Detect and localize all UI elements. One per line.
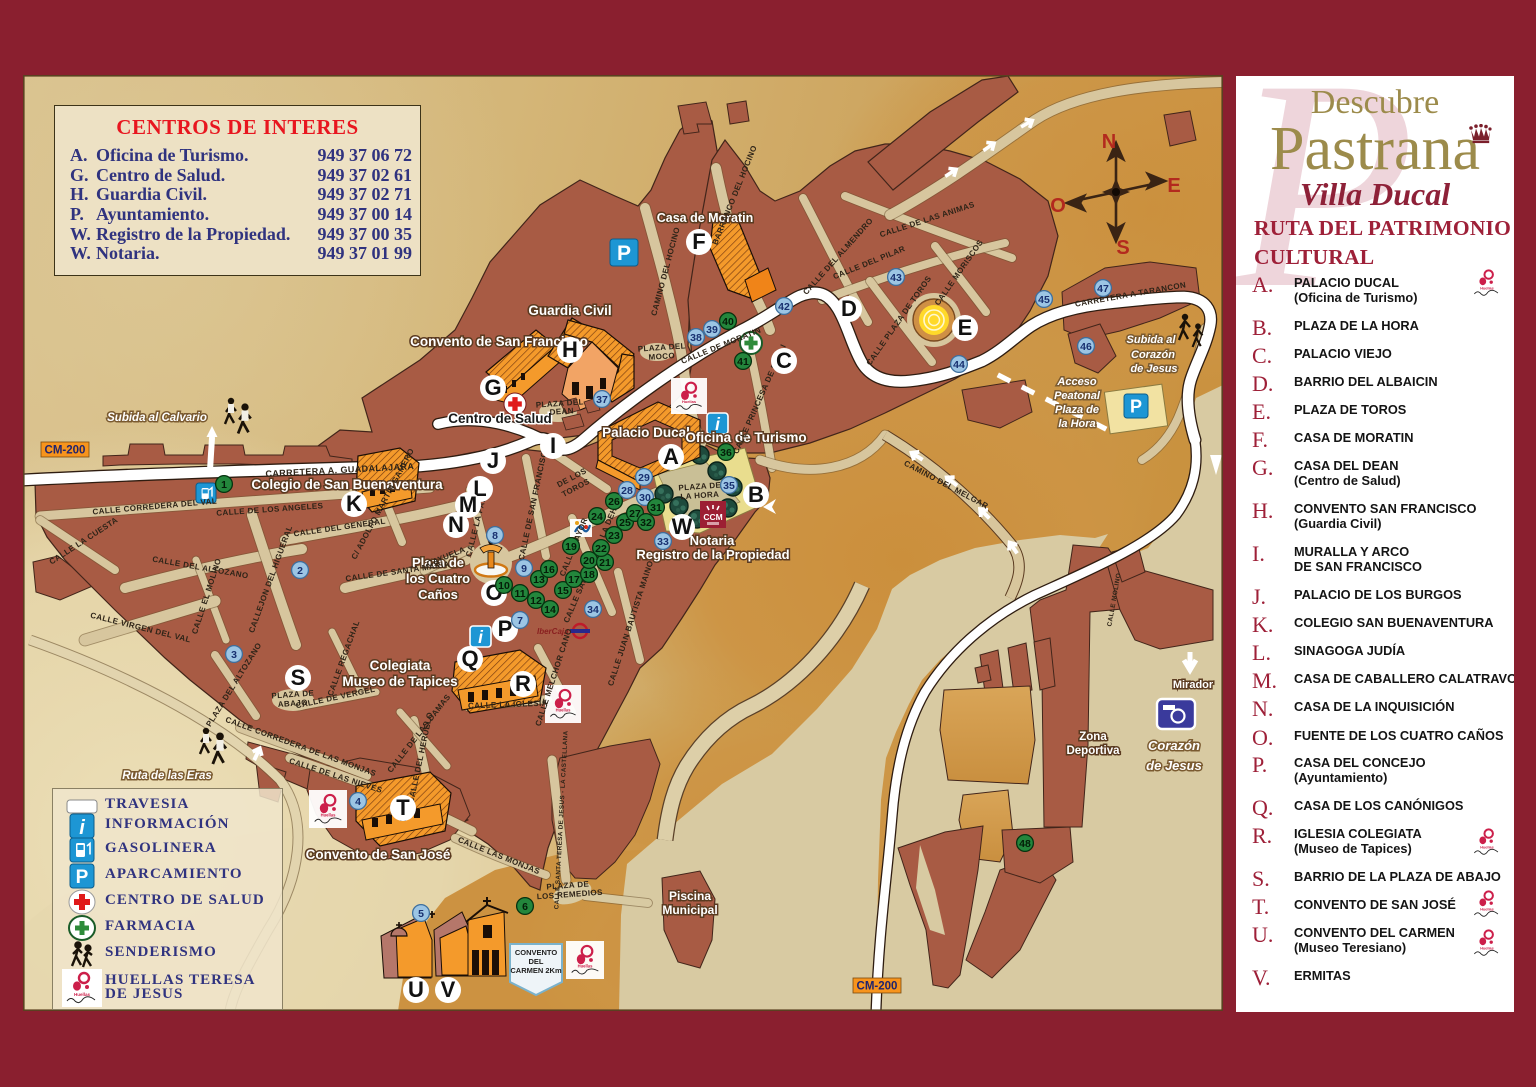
- svg-text:2: 2: [297, 565, 303, 577]
- svg-text:47: 47: [1097, 283, 1109, 295]
- svg-text:Q: Q: [461, 646, 478, 671]
- svg-text:la Hora: la Hora: [1058, 418, 1095, 430]
- svg-text:Museo de Tapices: Museo de Tapices: [342, 674, 457, 689]
- svg-text:48: 48: [1019, 838, 1031, 850]
- svg-text:14: 14: [544, 604, 556, 616]
- svg-text:CM-200: CM-200: [45, 445, 86, 457]
- svg-text:23: 23: [608, 530, 620, 542]
- svg-text:Huellas: Huellas: [578, 964, 593, 969]
- svg-text:40: 40: [722, 316, 734, 328]
- svg-text:1: 1: [221, 479, 227, 491]
- svg-text:Mirador: Mirador: [1173, 679, 1214, 691]
- svg-text:Subida al Calvario: Subida al Calvario: [107, 412, 207, 424]
- svg-text:K: K: [346, 491, 362, 516]
- svg-text:10: 10: [498, 580, 510, 592]
- svg-text:38: 38: [690, 332, 702, 344]
- svg-text:S: S: [291, 665, 306, 690]
- svg-text:Peatonal: Peatonal: [1054, 390, 1101, 402]
- svg-text:41: 41: [737, 356, 749, 368]
- svg-text:E: E: [958, 315, 973, 340]
- svg-text:21: 21: [599, 557, 611, 569]
- svg-text:P: P: [76, 867, 89, 888]
- svg-text:G: G: [484, 375, 501, 400]
- svg-text:7: 7: [517, 615, 523, 627]
- svg-text:C: C: [776, 348, 792, 373]
- svg-text:12: 12: [530, 595, 542, 607]
- svg-text:T: T: [396, 795, 410, 820]
- svg-text:de Jesus: de Jesus: [1130, 363, 1177, 375]
- svg-text:N: N: [1102, 131, 1116, 153]
- svg-text:E: E: [1167, 175, 1180, 197]
- svg-text:V: V: [441, 977, 456, 1002]
- svg-text:35: 35: [723, 480, 735, 492]
- svg-text:19: 19: [565, 541, 577, 553]
- svg-text:P: P: [498, 616, 513, 641]
- svg-text:F: F: [692, 229, 705, 254]
- svg-text:Deportiva: Deportiva: [1066, 745, 1120, 757]
- svg-text:Caños: Caños: [418, 587, 458, 602]
- svg-text:Acceso: Acceso: [1056, 376, 1096, 388]
- svg-text:33: 33: [657, 536, 669, 548]
- svg-text:Casa de Moratin: Casa de Moratin: [657, 211, 754, 225]
- svg-text:Corazón: Corazón: [1131, 349, 1175, 361]
- svg-text:W: W: [672, 514, 693, 539]
- svg-text:5: 5: [418, 908, 424, 920]
- svg-text:de Jesus: de Jesus: [1146, 758, 1202, 773]
- svg-text:Notaria: Notaria: [690, 533, 736, 548]
- svg-text:CM-200: CM-200: [857, 981, 898, 993]
- svg-text:Piscina: Piscina: [669, 889, 711, 903]
- svg-text:17: 17: [568, 574, 580, 586]
- svg-text:34: 34: [587, 604, 599, 616]
- svg-text:8: 8: [492, 530, 498, 542]
- svg-text:39: 39: [706, 324, 718, 336]
- svg-text:Palacio Ducal: Palacio Ducal: [602, 425, 690, 440]
- svg-text:Municipal: Municipal: [662, 903, 717, 917]
- svg-text:Corazón: Corazón: [1148, 738, 1200, 753]
- svg-text:15: 15: [557, 585, 569, 597]
- svg-text:22: 22: [595, 543, 607, 555]
- svg-text:Colegiata: Colegiata: [370, 658, 431, 673]
- svg-text:Centro de Salud: Centro de Salud: [448, 411, 552, 426]
- svg-text:Plaza de: Plaza de: [1055, 404, 1099, 416]
- svg-text:Zona: Zona: [1079, 731, 1107, 743]
- svg-text:DEL: DEL: [529, 957, 544, 966]
- svg-text:11: 11: [514, 588, 525, 600]
- svg-text:45: 45: [1038, 294, 1050, 306]
- svg-text:Huellas: Huellas: [321, 813, 336, 818]
- svg-text:6: 6: [522, 901, 528, 913]
- svg-text:Subida al: Subida al: [1127, 334, 1177, 346]
- svg-text:26: 26: [608, 496, 620, 508]
- svg-text:N: N: [448, 512, 464, 537]
- svg-text:9: 9: [521, 563, 527, 575]
- svg-text:20: 20: [583, 555, 595, 567]
- svg-text:D: D: [841, 296, 857, 321]
- svg-text:I: I: [550, 433, 556, 458]
- svg-text:18: 18: [583, 569, 595, 581]
- svg-text:Convento de San José: Convento de San José: [306, 847, 451, 862]
- svg-text:43: 43: [890, 272, 902, 284]
- svg-text:Ruta de las Eras: Ruta de las Eras: [122, 770, 211, 782]
- svg-text:28: 28: [621, 485, 633, 497]
- svg-text:Colegio de San Buenaventura: Colegio de San Buenaventura: [251, 477, 443, 492]
- svg-text:B: B: [748, 482, 764, 507]
- svg-text:46: 46: [1080, 341, 1092, 353]
- svg-text:A: A: [663, 444, 679, 469]
- svg-text:31: 31: [650, 502, 662, 514]
- svg-text:Huellas: Huellas: [556, 708, 571, 713]
- svg-text:MOCO: MOCO: [648, 351, 675, 362]
- svg-text:S: S: [1116, 237, 1129, 259]
- svg-text:J: J: [487, 448, 499, 473]
- svg-text:36: 36: [720, 447, 732, 459]
- svg-text:16: 16: [543, 564, 555, 576]
- svg-text:37: 37: [596, 394, 608, 406]
- svg-text:32: 32: [640, 517, 652, 529]
- svg-text:O: O: [1050, 195, 1066, 217]
- svg-text:4: 4: [355, 796, 361, 808]
- svg-text:i: i: [79, 817, 85, 839]
- svg-text:P: P: [1130, 396, 1142, 416]
- svg-text:3: 3: [231, 649, 237, 661]
- svg-text:P: P: [617, 242, 631, 265]
- svg-text:42: 42: [778, 301, 790, 313]
- svg-text:Huellas: Huellas: [682, 399, 697, 404]
- svg-text:H: H: [562, 337, 578, 362]
- svg-text:U: U: [408, 977, 424, 1002]
- svg-text:44: 44: [953, 359, 965, 371]
- svg-text:CONVENTO: CONVENTO: [515, 948, 558, 957]
- svg-text:29: 29: [638, 472, 650, 484]
- svg-text:DEAN: DEAN: [549, 406, 574, 417]
- svg-text:R: R: [515, 671, 531, 696]
- svg-text:24: 24: [591, 511, 603, 523]
- svg-text:CARMEN 2Km: CARMEN 2Km: [510, 966, 562, 975]
- svg-text:CCM: CCM: [703, 512, 722, 522]
- svg-text:Guardia Civil: Guardia Civil: [528, 303, 611, 318]
